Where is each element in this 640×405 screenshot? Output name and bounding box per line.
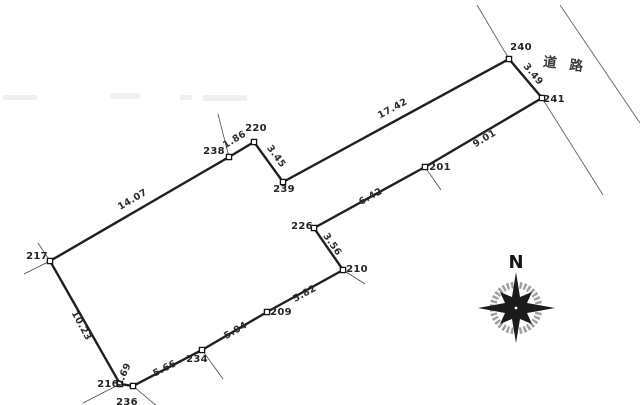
compass-north-label: N xyxy=(508,252,523,273)
scan-smudge xyxy=(180,95,192,100)
extension-lines xyxy=(24,114,441,405)
point-label-220: 220 xyxy=(245,123,267,134)
survey-plat-page: 217238220239240241201226210209234236216 … xyxy=(0,0,640,405)
boundary-point-marker-240 xyxy=(506,56,511,61)
edge-length-label-210-209: 5.82 xyxy=(291,283,318,305)
compass-center-dot xyxy=(515,307,518,310)
plat-drawing: 217238220239240241201226210209234236216 … xyxy=(0,0,640,405)
point-label-238: 238 xyxy=(203,146,225,157)
scan-smudge xyxy=(203,95,247,101)
point-label-236: 236 xyxy=(116,397,138,405)
road-label: 道路 xyxy=(542,53,597,76)
edge-length-label-226-210: 3.56 xyxy=(320,231,343,258)
scan-artifacts xyxy=(3,93,247,101)
boundary-point-marker-236 xyxy=(130,383,135,388)
point-label-241: 241 xyxy=(543,94,565,105)
edge-length-label-217-238: 14.07 xyxy=(116,187,149,213)
point-label-210: 210 xyxy=(346,264,368,275)
point-label-209: 209 xyxy=(270,307,292,318)
boundary-point-marker-238 xyxy=(226,154,231,159)
boundary-point-marker-201 xyxy=(422,164,427,169)
boundary-point-marker-234 xyxy=(199,347,204,352)
boundary-point-marker-217 xyxy=(47,258,52,263)
edge-length-label-220-239: 3.45 xyxy=(264,143,288,170)
edge-length-label-209-234: 5.04 xyxy=(222,320,249,342)
boundary-point-marker-210 xyxy=(340,267,345,272)
point-label-239: 239 xyxy=(273,184,295,195)
edge-length-label-201-226: 6.42 xyxy=(357,186,384,208)
edge-length-label-239-240: 17.42 xyxy=(376,96,409,121)
point-label-234: 234 xyxy=(186,354,208,365)
boundary-point-marker-209 xyxy=(264,309,269,314)
edge-length-label-234-236: 5.66 xyxy=(151,358,178,379)
point-label-226: 226 xyxy=(291,221,313,232)
edge-length-label-216-217: 10.23 xyxy=(69,309,94,342)
extension-line xyxy=(24,261,50,274)
point-label-240: 240 xyxy=(510,42,532,53)
scan-smudge xyxy=(110,93,140,99)
boundary-point-labels: 217238220239240241201226210209234236216 xyxy=(26,42,565,405)
boundary-point-marker-220 xyxy=(251,139,256,144)
compass-rose: N xyxy=(478,252,555,343)
point-label-201: 201 xyxy=(429,162,451,173)
edge-length-label-240-241: 3.49 xyxy=(521,61,546,87)
scan-smudge xyxy=(3,95,37,100)
point-label-217: 217 xyxy=(26,251,48,262)
